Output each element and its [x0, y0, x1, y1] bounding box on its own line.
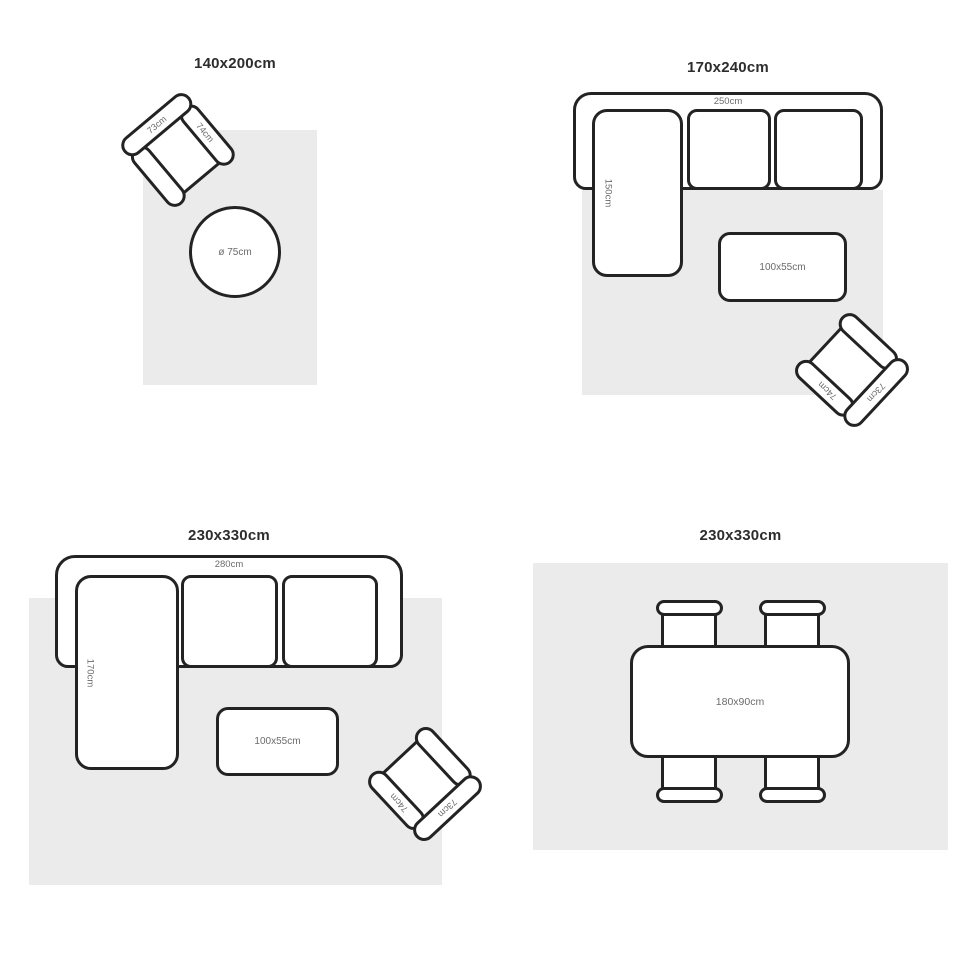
rug-size-guide: 140x200cm 73cm 74cm ø 75cm 170x240cm 250…	[0, 0, 970, 970]
sofa-cushion	[687, 109, 771, 190]
sofa-cushion	[774, 109, 863, 190]
dining-table: 180x90cm	[630, 645, 850, 758]
sofa-chaise: 170cm	[75, 575, 179, 770]
sofa-cushion	[282, 575, 378, 668]
dining-chair-backrest	[656, 787, 723, 803]
chaise-length-dimension: 170cm	[85, 658, 96, 687]
chaise-length-dimension: 150cm	[603, 179, 614, 208]
sofa-chaise: 150cm	[592, 109, 683, 277]
panel-title: 230x330cm	[533, 527, 948, 544]
sofa-cushion	[181, 575, 278, 668]
dining-chair-backrest	[656, 600, 723, 616]
dining-chair-backrest	[759, 600, 826, 616]
dining-table-dimension: 180x90cm	[716, 696, 764, 708]
dining-chair-backrest	[759, 787, 826, 803]
